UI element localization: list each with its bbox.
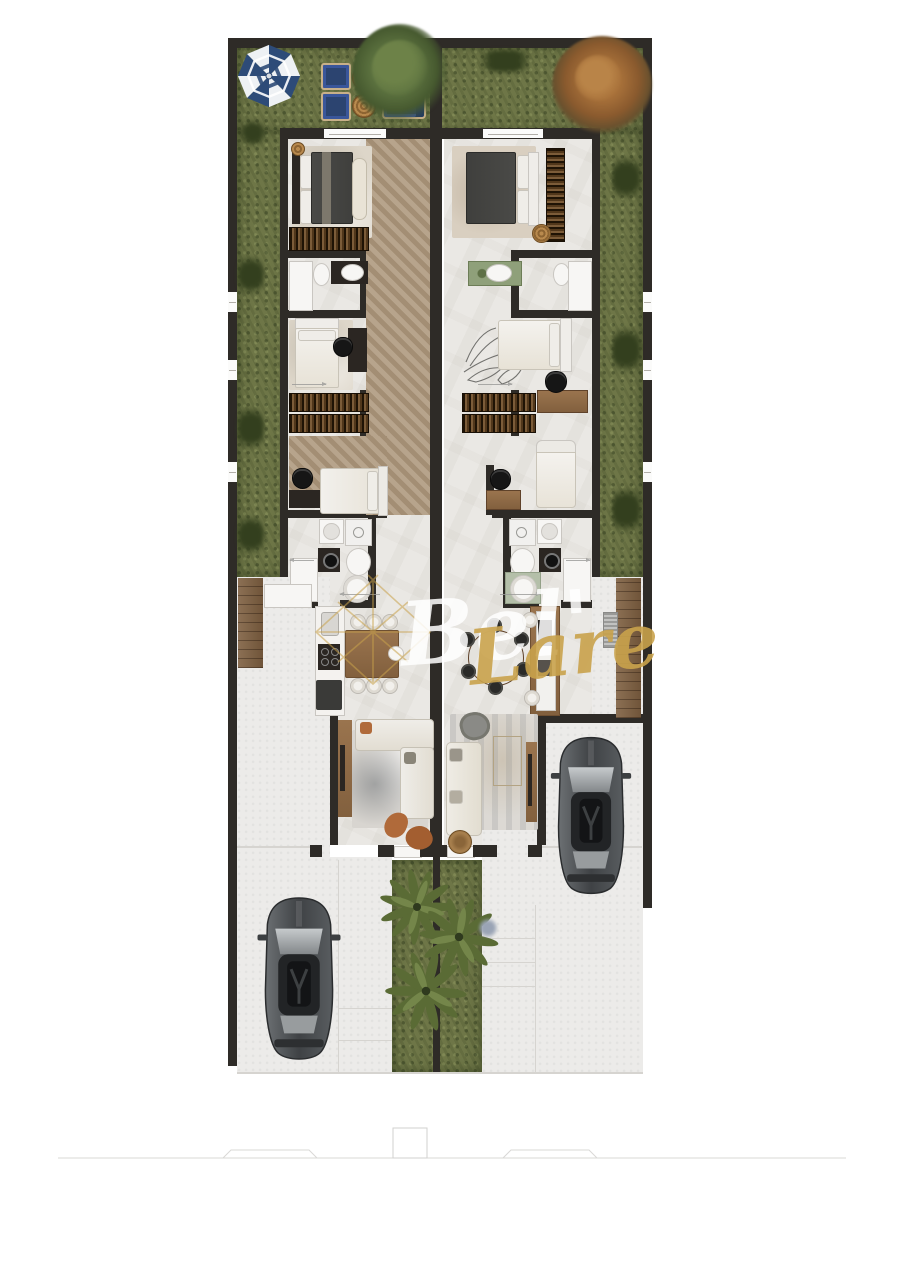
right-master-headboard xyxy=(528,152,539,226)
left-deck-walkway xyxy=(238,578,263,668)
left-master-bed-duvet xyxy=(311,152,353,224)
built-in-oven xyxy=(538,620,552,646)
dining-chair xyxy=(516,662,531,677)
round-side-table xyxy=(448,830,472,854)
right-shower-tray xyxy=(563,558,591,602)
decorative-shape xyxy=(58,1128,846,1158)
left-bath1-toilet xyxy=(313,263,330,286)
decorative-shape xyxy=(573,851,609,868)
boundary-wall-left xyxy=(228,46,237,1066)
interior-wall xyxy=(511,250,592,258)
door-arrow xyxy=(290,560,314,561)
dining-chair xyxy=(461,664,476,679)
door-arrow xyxy=(292,384,326,385)
outdoor-chair xyxy=(321,92,351,121)
hedge xyxy=(612,150,640,206)
hedge xyxy=(238,250,264,300)
right-closet-wardrobe xyxy=(462,414,536,433)
right-bath1-shower xyxy=(568,261,592,311)
left-bed3-desk xyxy=(289,490,320,508)
interior-wall xyxy=(511,310,592,318)
nightstand xyxy=(291,142,305,156)
left-closet-wardrobe xyxy=(289,393,369,412)
decorative-shape xyxy=(551,773,561,779)
garage-lintel-left xyxy=(237,846,310,848)
hedge xyxy=(238,510,264,560)
decorative-shape xyxy=(455,933,463,941)
bar-stool xyxy=(522,612,538,628)
basket xyxy=(532,224,551,243)
pillow xyxy=(549,323,560,367)
facade-post xyxy=(310,845,322,857)
decorative-shape xyxy=(422,987,431,996)
interior-wall xyxy=(287,250,368,258)
left-bath1-shower xyxy=(289,261,313,311)
pavement-joint xyxy=(339,1040,392,1041)
street-curb-line xyxy=(0,1120,904,1180)
hedge xyxy=(238,120,268,146)
office-chair xyxy=(491,470,510,489)
decorative-shape xyxy=(503,1150,597,1158)
window-left-wall xyxy=(228,360,237,380)
hedge xyxy=(612,480,640,540)
ac-unit xyxy=(603,612,618,648)
right-living-wall xyxy=(537,714,546,845)
decorative-shape xyxy=(274,1039,323,1047)
right-bed3 xyxy=(536,452,576,508)
washer-door xyxy=(544,553,560,569)
window-right-wall xyxy=(643,292,652,312)
pillow xyxy=(367,471,378,511)
window-left-wall xyxy=(228,462,237,482)
decorative-shape xyxy=(331,935,341,941)
right-bed3-desk xyxy=(486,490,521,510)
car-left xyxy=(252,895,346,1063)
left-bed3-headboard xyxy=(378,466,388,516)
car-right xyxy=(548,733,634,899)
decorative-shape xyxy=(275,929,322,955)
palm-tree xyxy=(383,948,469,1034)
left-bath2-sink xyxy=(323,523,340,540)
decorative-shape xyxy=(257,935,267,941)
small-shrub xyxy=(478,918,498,938)
decorative-shape xyxy=(316,580,430,684)
facade-post xyxy=(528,845,542,857)
office-chair xyxy=(334,338,352,356)
dining-chair xyxy=(514,632,529,647)
window-right-wall xyxy=(643,360,652,380)
decorative-shape xyxy=(568,767,614,792)
left-tv xyxy=(340,745,345,791)
rear-window-left-unit xyxy=(324,129,386,138)
facade-wall xyxy=(473,845,497,857)
rear-window-right-unit xyxy=(483,129,543,138)
pillow xyxy=(298,330,336,341)
facade-wall xyxy=(378,845,394,857)
window-right-wall xyxy=(643,462,652,482)
decorative-shape xyxy=(622,773,632,779)
floor-plan-page: Bel' Lare xyxy=(0,0,904,1280)
right-bath1-sink xyxy=(486,264,512,282)
decorative-shape xyxy=(567,874,615,882)
bed-bench xyxy=(352,158,367,220)
bed-throw xyxy=(322,152,331,224)
bar-stool xyxy=(524,690,540,706)
hedge xyxy=(612,320,640,380)
pillow xyxy=(404,752,416,764)
shower-drain xyxy=(516,527,527,538)
right-deck-walkway xyxy=(616,578,641,718)
decorative-shape xyxy=(296,901,302,927)
decorative-shape xyxy=(238,45,300,107)
decorative-shape xyxy=(223,1150,317,1158)
shower-drain xyxy=(353,527,364,538)
decorative-shape xyxy=(266,73,272,79)
door-arrow xyxy=(500,594,540,595)
outdoor-chair xyxy=(321,63,351,90)
right-unit-side-wall xyxy=(592,128,600,577)
pillow xyxy=(449,748,463,762)
window-left-wall xyxy=(228,292,237,312)
pillow xyxy=(449,790,463,804)
right-bed2-headboard xyxy=(560,318,572,372)
right-bathtub xyxy=(510,575,537,603)
right-master-bed-duvet xyxy=(466,152,516,224)
pavement-joint xyxy=(535,905,536,1073)
decorative-shape xyxy=(468,368,522,384)
pavement-joint xyxy=(482,986,536,987)
hedge xyxy=(470,50,540,72)
decorative-shape xyxy=(316,575,430,684)
right-desk xyxy=(537,390,588,413)
left-master-headboard xyxy=(292,152,300,224)
left-bath1-sink xyxy=(341,264,364,281)
decorative-shape xyxy=(280,1016,318,1034)
dining-chair xyxy=(487,618,502,633)
accent-pillow xyxy=(360,722,372,734)
office-chair xyxy=(546,372,566,392)
watermark-logo xyxy=(298,572,448,692)
door-arrow xyxy=(478,384,512,385)
washer-door xyxy=(323,553,339,569)
office-chair xyxy=(293,469,312,488)
left-closet-wardrobe xyxy=(289,414,369,433)
green-tree-highlight xyxy=(372,40,428,96)
right-closet-wardrobe xyxy=(462,393,536,412)
left-living-wall xyxy=(330,716,338,845)
right-tv xyxy=(528,754,532,806)
plan-bottom-edge xyxy=(237,1072,643,1074)
right-bath2-sink xyxy=(541,523,558,540)
dining-chair xyxy=(488,680,503,695)
decorative-shape xyxy=(588,741,594,766)
door-arrow xyxy=(566,560,590,561)
small-appliance xyxy=(538,660,552,676)
interior-wall xyxy=(287,310,368,318)
sideboard xyxy=(493,736,522,786)
decorative-shape xyxy=(393,1128,427,1158)
left-master-wardrobe xyxy=(289,227,369,251)
hedge xyxy=(238,400,264,456)
autumn-tree-highlight xyxy=(575,55,621,101)
patio-umbrella xyxy=(236,43,302,109)
dining-chair xyxy=(460,632,475,647)
